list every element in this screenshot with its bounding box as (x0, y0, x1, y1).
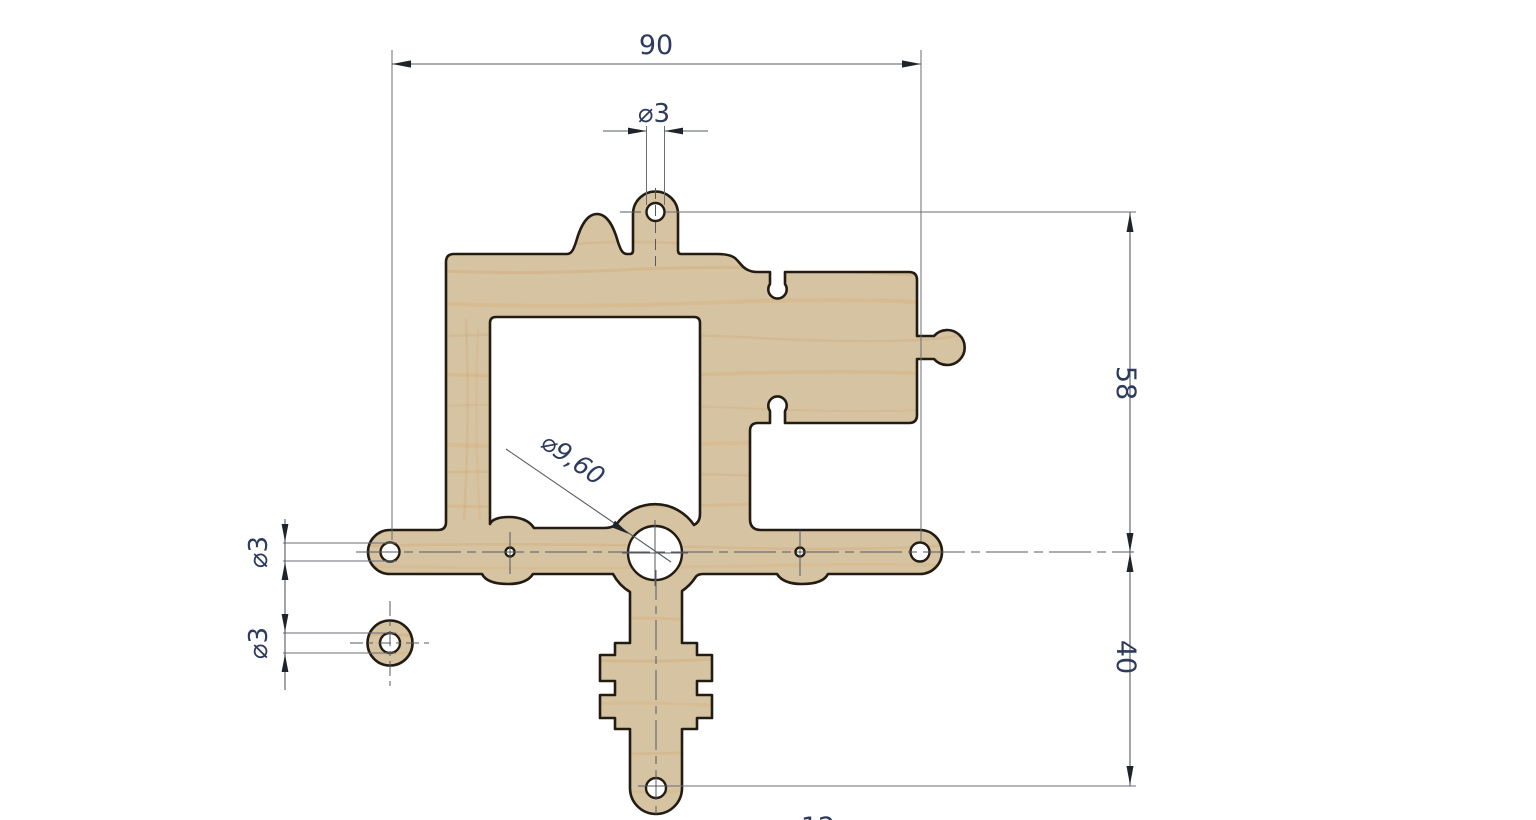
dim-label-width: 90 (639, 30, 673, 61)
dimension-height-40: 40 (668, 552, 1141, 786)
dim-label-center-hole: ⌀9,60 (535, 427, 610, 491)
arrow-top (1127, 553, 1134, 572)
dim-label-disc-hole: ⌀3 (244, 627, 274, 659)
technical-drawing-canvas: 90 ⌀3 58 40 ⌀9,60 ⌀3 (0, 0, 1536, 820)
arrow-bottom (282, 562, 289, 580)
dim-label-12-partial: 12 (801, 812, 835, 820)
arrow-bottom (1127, 766, 1134, 785)
arrow-right (902, 60, 921, 67)
technical-drawing-page: 90 ⌀3 58 40 ⌀9,60 ⌀3 (0, 0, 1536, 820)
dimension-bottom-12: 12 (801, 812, 835, 820)
window-cutout (490, 317, 700, 528)
arrow-left (392, 60, 411, 67)
arrow-bottom (282, 654, 289, 672)
part-bracket (360, 192, 967, 815)
arrow-top (282, 614, 289, 632)
dim-label-40: 40 (1110, 640, 1141, 674)
dim-label-58: 58 (1110, 366, 1141, 400)
arrow-top (1127, 213, 1134, 232)
part-body-fill (368, 192, 965, 815)
arrow-bottom (1127, 533, 1134, 552)
arrow-top (282, 524, 289, 542)
dim-label-top-hole: ⌀3 (638, 99, 670, 129)
dim-label-arm-hole: ⌀3 (244, 536, 274, 568)
